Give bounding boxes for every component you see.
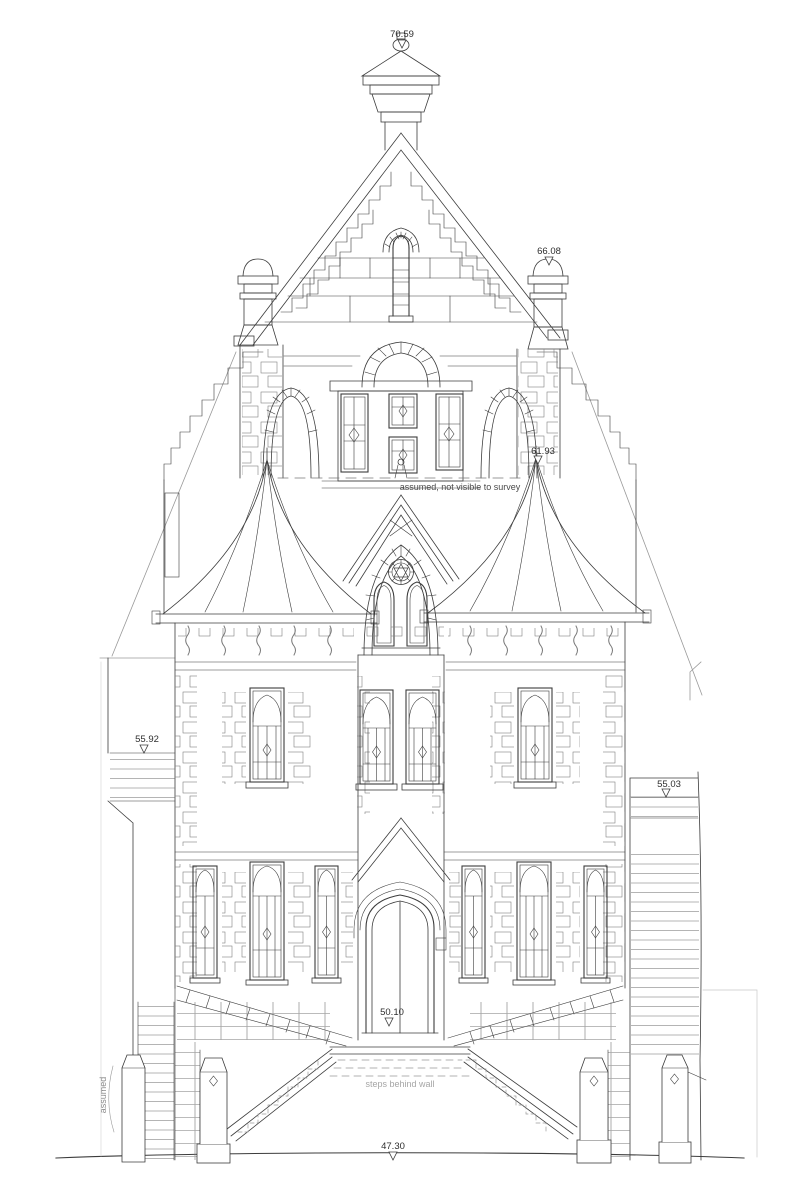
elevation-sheet: 70.59 66.08 61.93 55.92 55.03 50.10 47.3… — [0, 0, 800, 1200]
window — [459, 866, 488, 983]
level-marker-ground: 47.30 — [381, 1141, 405, 1160]
right-inner-pier — [577, 1058, 611, 1163]
spire-finial — [362, 33, 440, 150]
svg-text:47.30: 47.30 — [381, 1141, 405, 1152]
svg-text:70.59: 70.59 — [390, 29, 414, 40]
right-railing — [464, 1049, 577, 1139]
star-of-david-window — [389, 560, 414, 585]
main-gable — [234, 133, 568, 346]
elevation-drawing: 70.59 66.08 61.93 55.92 55.03 50.10 47.3… — [0, 0, 800, 1200]
window — [246, 862, 288, 985]
left-chimney — [238, 259, 278, 345]
svg-text:50.10: 50.10 — [380, 1007, 404, 1018]
level-marker-right-wall: 55.03 — [657, 779, 681, 797]
entrance-door — [352, 818, 450, 1033]
window — [514, 688, 556, 788]
note-assumed-pier: assumed — [98, 1077, 108, 1114]
left-inner-pier — [197, 1058, 230, 1163]
level-marker-finial: 70.59 — [390, 29, 414, 48]
window — [312, 866, 341, 983]
note-steps-behind-wall: steps behind wall — [365, 1079, 434, 1089]
right-outer-pier — [659, 1055, 706, 1163]
window — [246, 688, 288, 788]
middle-band — [240, 342, 560, 488]
svg-text:55.03: 55.03 — [657, 779, 681, 790]
note-roof-assumed: assumed, not visible to survey — [400, 482, 521, 492]
left-flank-roof — [100, 352, 263, 658]
svg-text:55.92: 55.92 — [135, 734, 159, 745]
background-edge-right — [703, 990, 757, 1157]
svg-text:66.08: 66.08 — [537, 246, 561, 257]
window — [513, 862, 555, 985]
left-outer-pier-assumed — [109, 1055, 145, 1162]
gable-lancet-window — [383, 228, 419, 322]
front-steps — [227, 1047, 577, 1141]
left-railing — [227, 1049, 336, 1141]
level-marker-left-wall: 55.92 — [135, 734, 159, 753]
svg-text:61.93: 61.93 — [531, 446, 555, 457]
